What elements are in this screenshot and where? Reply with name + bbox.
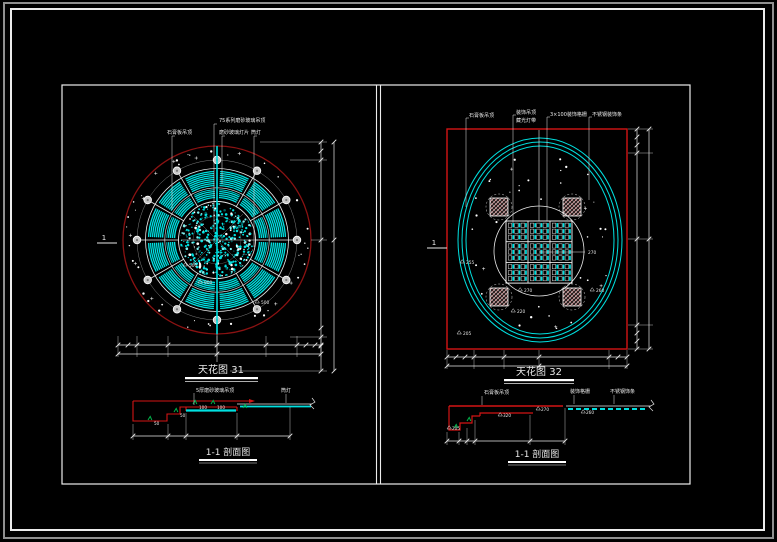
callout-label: 藏光灯带 (516, 117, 536, 124)
annotation-text: 255 (466, 260, 474, 266)
annotation-text: 500 (261, 300, 269, 306)
drawing-title: 1-1 剖面图 (206, 446, 251, 458)
callout-label: 石膏板吊顶 (469, 112, 494, 119)
annotation-text: 100 (199, 405, 207, 410)
annotation-text: 205 (463, 331, 471, 337)
annotation-text: 220 (517, 309, 525, 315)
callout-label: 装饰格栅 (570, 388, 590, 395)
callout-label: 不锈钢装饰条 (592, 111, 622, 118)
column (486, 194, 512, 220)
left-section: 50501001005厚磨砂玻璃吊顶筒灯1-1 剖面图 (131, 387, 315, 463)
callout-label: 石膏板吊顶 (167, 129, 192, 136)
column (559, 194, 585, 220)
section-marker: 1 (432, 239, 436, 247)
callout-label: 筒灯 (251, 129, 261, 136)
annotation-text: 320 (503, 413, 511, 418)
annotation-text: 500 (189, 263, 197, 269)
callout-label: 75系列磨砂玻璃吊顶 (219, 117, 265, 124)
right-plan: 270270220205260255石膏板吊顶装饰吊顶藏光灯带3×100装饰格栅… (427, 109, 653, 384)
annotation-text: 205 (452, 426, 460, 431)
annotation-text: 100 (217, 405, 225, 410)
annotation-text: 260 (586, 410, 594, 415)
cad-sheet: 50090050075系列磨砂玻璃吊顶石膏板吊顶磨砂玻璃灯片筒灯1天花图 315… (0, 0, 777, 542)
callout-label: 磨砂玻璃灯片 (219, 129, 249, 136)
drawing-title: 天花图 32 (516, 365, 562, 378)
annotation-text: 50 (180, 413, 186, 418)
section-marker: 1 (102, 234, 106, 242)
annotation-text: 270 (588, 250, 596, 256)
annotation-text: 900 (204, 280, 212, 286)
callout-label: 5厚磨砂玻璃吊顶 (196, 387, 234, 394)
annotation-text: 270 (541, 407, 549, 412)
annotation-text: 270 (524, 288, 532, 294)
right-section: 205320270260石膏板吊顶装饰格栅不锈钢饰条1-1 剖面图 (445, 388, 654, 465)
callout-label: 3×100装饰格栅 (550, 111, 587, 118)
callout-label: 装饰吊顶 (516, 109, 536, 116)
column (559, 284, 585, 310)
left-plan: 50090050075系列磨砂玻璃吊顶石膏板吊顶磨砂玻璃灯片筒灯1天花图 31 (97, 117, 336, 382)
callout-label: 不锈钢饰条 (610, 388, 635, 395)
sheet-frame (4, 3, 773, 538)
cad-drawing: 50090050075系列磨砂玻璃吊顶石膏板吊顶磨砂玻璃灯片筒灯1天花图 315… (0, 0, 777, 542)
red-border (447, 129, 627, 349)
callout-label: 石膏板吊顶 (484, 389, 509, 396)
drawing-title: 天花图 31 (198, 363, 244, 376)
column (486, 284, 512, 310)
drawing-title: 1-1 剖面图 (515, 448, 560, 460)
annotation-text: 50 (154, 421, 160, 426)
annotation-text: 260 (596, 288, 604, 294)
callout-label: 筒灯 (281, 387, 291, 394)
